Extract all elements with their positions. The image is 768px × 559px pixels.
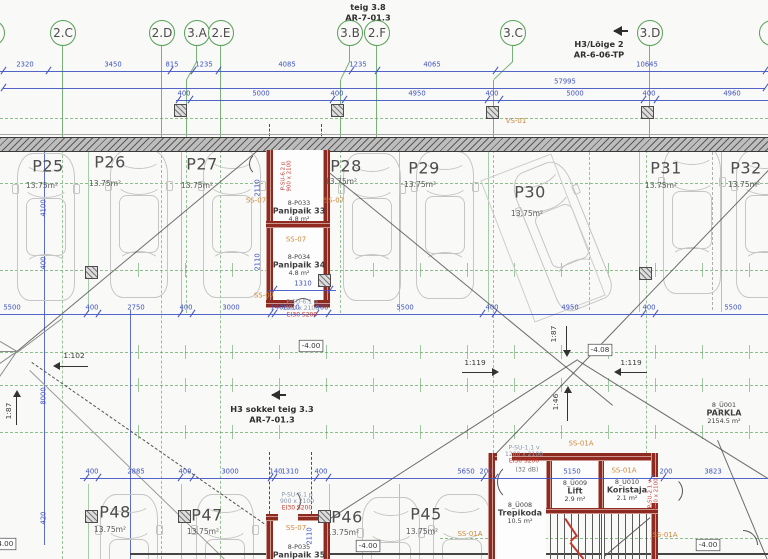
finish-code-label: SS-01A bbox=[652, 531, 677, 539]
slope-label: 1:87 bbox=[5, 403, 13, 420]
dimension-label: 815 bbox=[166, 61, 179, 68]
slope-arrow-line bbox=[566, 326, 567, 350]
dimension-label: 1310 bbox=[281, 468, 298, 475]
slope-arrow-line bbox=[16, 393, 17, 425]
slope-arrow-line bbox=[56, 366, 88, 367]
dimension-label-vertical: 8000 bbox=[40, 387, 47, 404]
stall-number-P27: P27 bbox=[186, 155, 218, 174]
dimension-label: 1235 bbox=[195, 61, 212, 68]
slope-label: 1:87 bbox=[550, 326, 558, 343]
stall-area: 13.75m² bbox=[404, 181, 436, 189]
dimension-label-vertical: 2110 bbox=[306, 527, 313, 544]
finish-code-label: VS-01 bbox=[506, 117, 527, 125]
dimension-tick bbox=[763, 84, 768, 92]
stall-area: 13.75m² bbox=[89, 180, 121, 188]
dimension-label: 4950 bbox=[408, 90, 425, 97]
dimension-label: 3450 bbox=[104, 61, 121, 68]
floor-plan-canvas: B2.C2.D3.A2.E3.B2.F3.C3.D bbox=[0, 0, 768, 559]
level-marker: -4.00 bbox=[696, 539, 720, 551]
finish-code-label: SS-07 bbox=[254, 292, 274, 300]
dimension-label: 10645 bbox=[636, 61, 658, 68]
dimension-label: 2750 bbox=[127, 304, 144, 311]
dimension-label: 400 bbox=[486, 304, 499, 311]
stall-number-P46: P46 bbox=[331, 508, 363, 527]
slope-arrow-head bbox=[563, 350, 571, 361]
stall-number-P31: P31 bbox=[650, 159, 682, 178]
dimension-line bbox=[80, 478, 768, 479]
stall-number-P45: P45 bbox=[410, 505, 442, 524]
slope-arrow-line bbox=[567, 389, 568, 421]
level-marker: -4.00 bbox=[299, 340, 323, 352]
stall-area: 13.75m² bbox=[181, 182, 213, 190]
stall-area: 13.75m² bbox=[728, 181, 760, 189]
stall-number-P47: P47 bbox=[191, 506, 223, 525]
dimension-line bbox=[268, 290, 336, 291]
dimension-label-vertical: 420 bbox=[40, 512, 47, 525]
slope-arrow-line bbox=[462, 372, 492, 373]
finish-code-label: SS-01A bbox=[611, 467, 636, 475]
door-label-line: 900 x 2100 bbox=[280, 498, 314, 505]
dimensions-layer: 2320345081512354085123540651064557995400… bbox=[0, 0, 768, 559]
level-marker: -4.00 bbox=[0, 538, 16, 550]
stall-area: 13.75m² bbox=[187, 528, 219, 536]
dimension-line bbox=[0, 71, 768, 72]
dimension-label-vertical: 4100 bbox=[40, 199, 47, 216]
slope-label: 1:119 bbox=[620, 359, 641, 367]
stall-area: 13.75m² bbox=[327, 529, 359, 537]
slope-arrow-head bbox=[564, 382, 572, 393]
stall-area: 13.75m² bbox=[325, 178, 357, 186]
dimension-label: 400 bbox=[486, 90, 499, 97]
dimension-label: 5150 bbox=[563, 468, 580, 475]
dimension-label: 400 bbox=[315, 468, 328, 475]
stall-area: 13.75m² bbox=[511, 210, 543, 218]
dimension-label: 3000 bbox=[222, 304, 239, 311]
dimension-label: 5500 bbox=[724, 304, 741, 311]
dimension-label: 3823 bbox=[704, 468, 721, 475]
finish-code-label: SS-01A bbox=[568, 440, 593, 448]
stall-area: 13.75m² bbox=[406, 528, 438, 536]
slope-arrow-head bbox=[49, 362, 60, 370]
dimension-label: 5500 bbox=[3, 304, 20, 311]
dimension-label: 5500 bbox=[396, 304, 413, 311]
slope-arrow-head bbox=[492, 368, 503, 376]
dimension-label: 400 bbox=[86, 304, 99, 311]
door-label: P-SU-1.1 v1200 x 2100EI30 S200 bbox=[505, 445, 543, 465]
dimension-label: 3000 bbox=[221, 468, 238, 475]
dimension-label: 200 bbox=[660, 468, 673, 475]
slope-arrow-head bbox=[610, 368, 621, 376]
dimension-label-vertical: 2110 bbox=[254, 179, 261, 196]
slope-arrow-head bbox=[13, 386, 21, 397]
dimension-line bbox=[3, 88, 765, 89]
slope-label: 1:46 bbox=[552, 394, 560, 411]
door-label-line: 900 x 2100 bbox=[286, 160, 292, 191]
dimension-label: 57995 bbox=[554, 78, 576, 85]
dimension-line bbox=[176, 100, 768, 101]
slope-label: 1:102 bbox=[63, 352, 84, 360]
door-label: P-SU-6.1 p900 x 2100EI30 S200 bbox=[285, 299, 319, 319]
dimension-label: 5650 bbox=[457, 468, 474, 475]
stall-number-P26: P26 bbox=[94, 153, 126, 172]
finish-code-label: SS-07 bbox=[246, 197, 266, 205]
dimension-label: 5000 bbox=[252, 90, 269, 97]
door-label: P-SU-6.1 p900 x 2100EI30 S200 bbox=[280, 492, 314, 512]
dimension-label: 4960 bbox=[723, 90, 740, 97]
dimension-label: 2885 bbox=[127, 468, 144, 475]
dimension-label: 400 bbox=[643, 90, 656, 97]
slope-arrow-line bbox=[617, 372, 647, 373]
dimension-label: 400 bbox=[86, 468, 99, 475]
stall-number-P32: P32 bbox=[730, 159, 762, 178]
door-label-line: 1200 x 2100 bbox=[505, 451, 543, 458]
dimension-label: 400 bbox=[178, 90, 191, 97]
dimension-label: 400 bbox=[179, 468, 192, 475]
door-label-line: EI30 S200 bbox=[285, 312, 319, 319]
door-label: P-SU-2.1 v900 x 2100 bbox=[647, 478, 659, 509]
level-marker: -4.00 bbox=[356, 540, 380, 552]
finish-code-label: SS-07 bbox=[324, 197, 344, 205]
stall-number-P25: P25 bbox=[32, 157, 64, 176]
door-label-line: EI30 S200 bbox=[280, 505, 314, 512]
stall-area: 13.75m² bbox=[26, 182, 58, 190]
dimension-label: 5000 bbox=[566, 90, 583, 97]
dimension-label-vertical: 400 bbox=[40, 257, 47, 270]
door-label-line: EI30 S200 bbox=[505, 458, 543, 465]
dimension-label-vertical: 2110 bbox=[254, 253, 261, 270]
stall-number-P48: P48 bbox=[99, 503, 131, 522]
dimension-label: 200 bbox=[480, 468, 493, 475]
door-label-line: 900 x 2100 bbox=[285, 305, 319, 312]
dimension-label: 4065 bbox=[423, 61, 440, 68]
stall-number-P30: P30 bbox=[514, 183, 546, 202]
door-label-line: 900 x 2100 bbox=[653, 478, 659, 509]
dimension-label: 400 bbox=[331, 90, 344, 97]
stall-area: 13.75m² bbox=[645, 182, 677, 190]
dimension-label: 1235 bbox=[349, 61, 366, 68]
slope-label: 1:119 bbox=[464, 359, 485, 367]
level-marker: -4.08 bbox=[588, 344, 612, 356]
dimension-label: 1310 bbox=[294, 280, 311, 287]
dimension-label: 4085 bbox=[278, 61, 295, 68]
dimension-label: 2320 bbox=[16, 61, 33, 68]
finish-code-label: SS-01A bbox=[457, 530, 482, 538]
stall-number-P28: P28 bbox=[330, 157, 362, 176]
dimension-label: 400 bbox=[643, 304, 656, 311]
stall-number-P29: P29 bbox=[408, 159, 440, 178]
dimension-label: 4950 bbox=[561, 304, 578, 311]
finish-code-label: SS-07 bbox=[286, 236, 306, 244]
finish-code-label: SS-07 bbox=[286, 524, 306, 532]
door-label: P-SU-6.2 p900 x 2100 bbox=[280, 160, 292, 191]
stall-area: 13.75m² bbox=[94, 526, 126, 534]
dimension-label: 400 bbox=[180, 304, 193, 311]
